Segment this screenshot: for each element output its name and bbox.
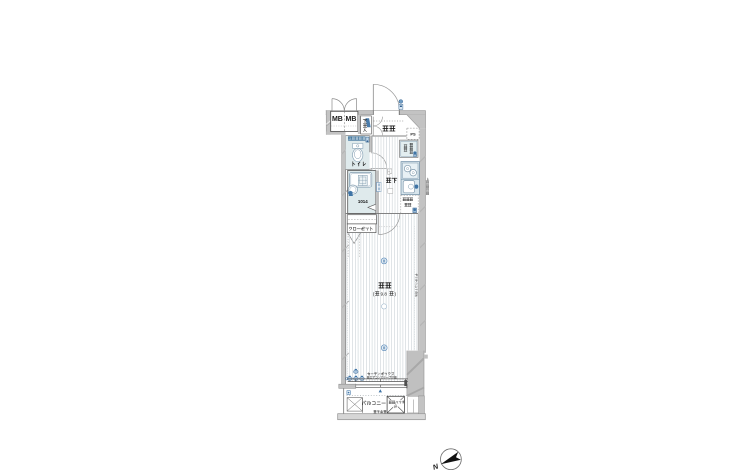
svg-text:(: (: [373, 292, 375, 297]
svg-text:): ): [395, 292, 397, 297]
svg-text:PS: PS: [410, 132, 416, 137]
svg-text:MB: MB: [332, 116, 343, 123]
svg-text:N: N: [432, 461, 440, 470]
svg-text:1014: 1014: [358, 199, 368, 204]
svg-text:9.8: 9.8: [381, 292, 388, 297]
svg-text:MB: MB: [346, 116, 357, 123]
